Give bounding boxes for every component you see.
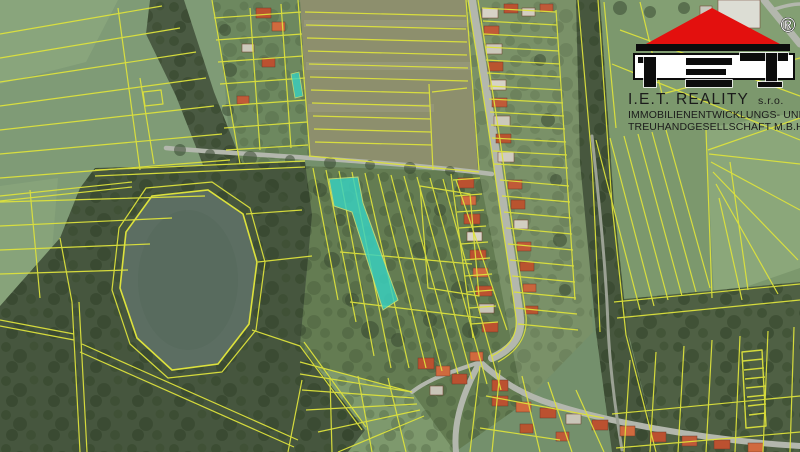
company-name: I.E.T. REALITY xyxy=(628,91,749,109)
pond-deep-water xyxy=(138,210,238,350)
roof-base-bar xyxy=(636,44,790,51)
company-description-line2: TREUHANDGESELLSCHAFT M.B.H. xyxy=(628,121,800,133)
company-description-line1: IMMOBILIENENTWICKLUNGS- UND xyxy=(628,109,800,121)
logo-brand-line: I.E.T. REALITY s.r.o. xyxy=(628,91,800,109)
roof-icon xyxy=(646,8,780,44)
company-legal-form: s.r.o. xyxy=(758,95,784,107)
registered-mark: ® xyxy=(781,15,796,37)
iet-emblem: ® xyxy=(628,4,800,90)
watermark-logo: ® I.E.T. REALITY s.r.o. IMMOBILIENENTWIC… xyxy=(628,4,800,133)
map-viewport: ® I.E.T. REALITY s.r.o. IMMOBILIENENTWIC… xyxy=(0,0,800,452)
